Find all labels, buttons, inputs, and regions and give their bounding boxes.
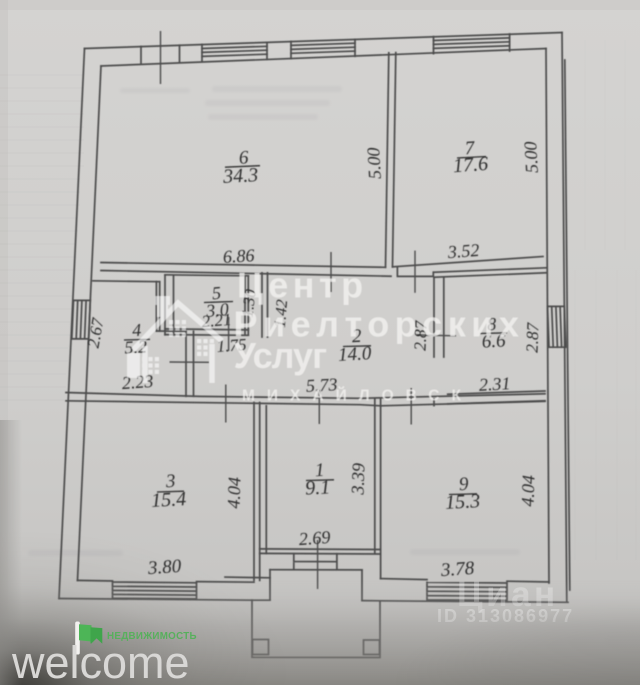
svg-text:3.52: 3.52 bbox=[446, 240, 480, 262]
svg-text:4.04: 4.04 bbox=[223, 477, 244, 509]
svg-text:Услуг: Услуг bbox=[234, 335, 328, 376]
svg-text:МИХАЙЛОВСК: МИХАЙЛОВСК bbox=[242, 387, 473, 405]
svg-text:4.04: 4.04 bbox=[517, 475, 538, 507]
svg-text:2.31: 2.31 bbox=[478, 373, 511, 395]
svg-text:5.00: 5.00 bbox=[520, 141, 542, 174]
svg-text:3.39: 3.39 bbox=[347, 463, 368, 496]
svg-text:5.00: 5.00 bbox=[363, 147, 385, 180]
svg-text:2.87: 2.87 bbox=[522, 321, 542, 353]
svg-text:welcome: welcome bbox=[11, 637, 190, 685]
svg-text:Центр: Центр bbox=[237, 265, 368, 306]
